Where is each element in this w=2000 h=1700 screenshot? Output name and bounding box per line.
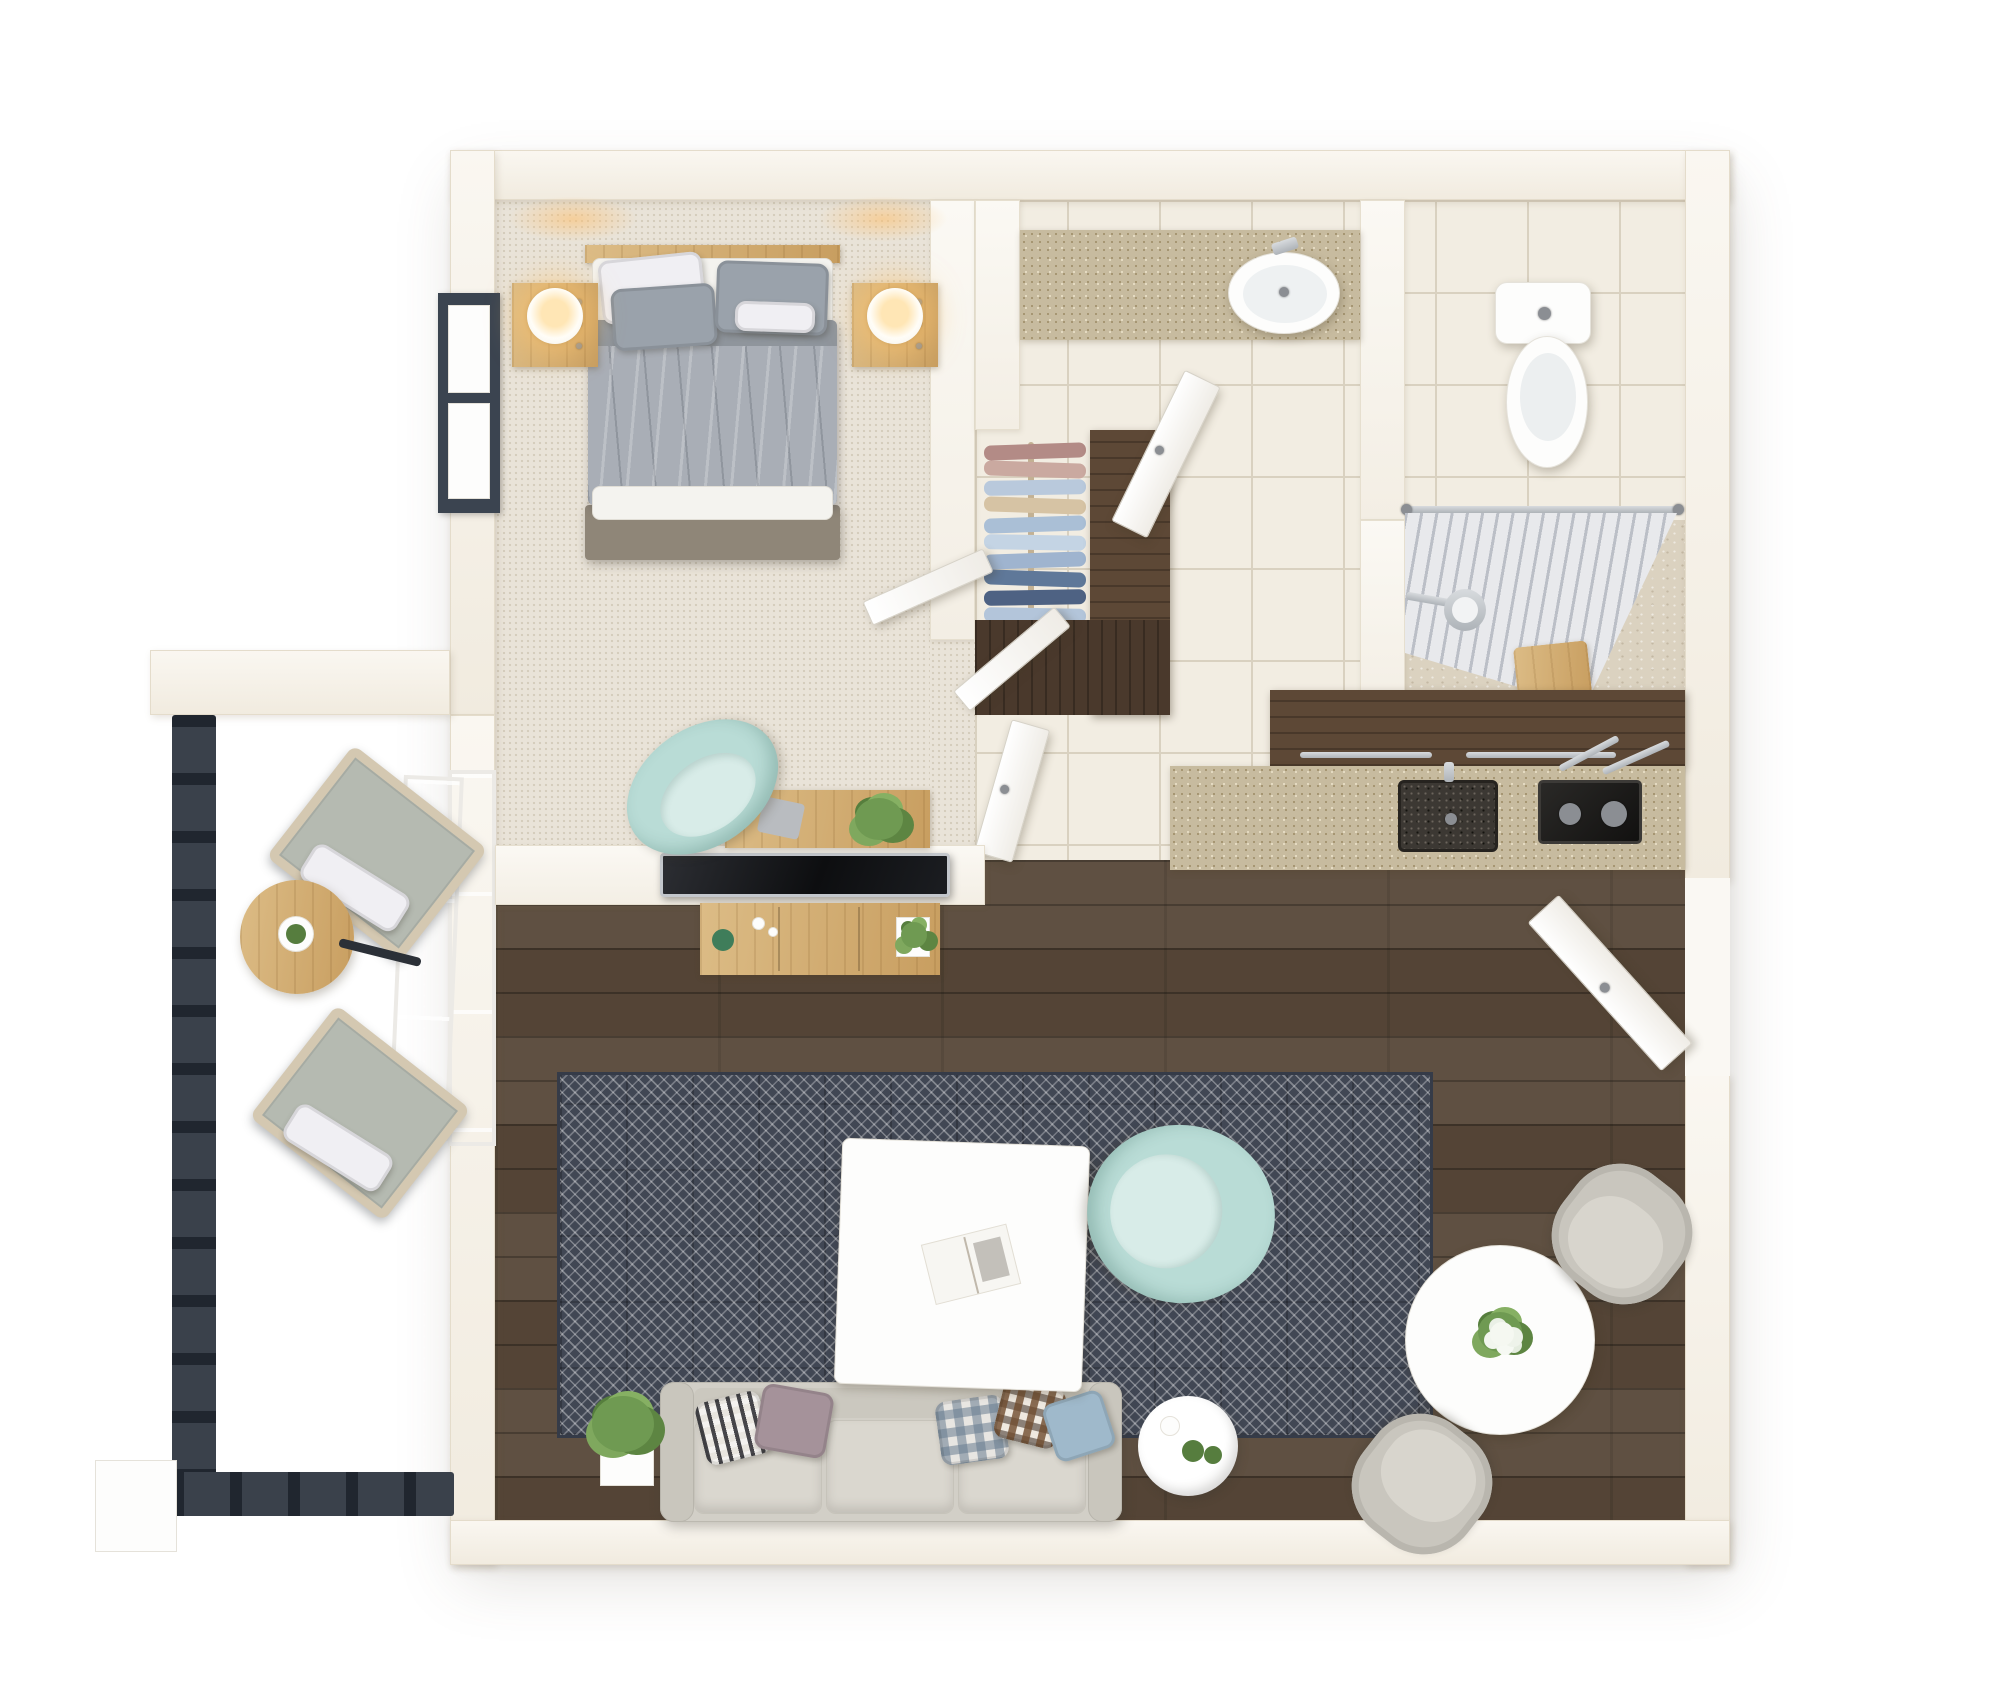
nightstand-right-knob-3 [916, 343, 922, 349]
closet-clothes-shirt-9 [984, 589, 1086, 606]
floorplan-canvas [0, 0, 2000, 1700]
balcony-curb [95, 1460, 177, 1552]
entry-threshold [1685, 878, 1730, 1076]
window-pane-upper [448, 305, 490, 393]
side-table-cup [1160, 1416, 1180, 1436]
sofa-seat-2 [826, 1420, 954, 1514]
lamp-left [527, 288, 583, 344]
coffee-table-magazine [921, 1224, 1021, 1305]
bedroom-window [438, 293, 500, 513]
desk-plant [855, 798, 903, 840]
kitchen-sink-drain [1445, 813, 1457, 825]
entry-door-handle [1598, 981, 1612, 995]
vanity-sink [1228, 252, 1340, 334]
shower-head [1444, 589, 1486, 631]
kitchen-upper-cabinet [1270, 690, 1685, 766]
burner-right [1601, 801, 1627, 827]
toilet-flush-button [1538, 307, 1551, 320]
bed-mattress-foot [592, 486, 833, 520]
bed-pillow-fold-white [735, 301, 816, 334]
balcony-table-plant [286, 924, 306, 944]
wall-right-upper [1685, 150, 1730, 880]
shower-head-face [1452, 597, 1478, 623]
coffee-table [834, 1138, 1090, 1393]
balcony-railing-bottom [172, 1472, 454, 1516]
wall-balcony-stub [150, 650, 450, 715]
magazine-photo [973, 1236, 1010, 1282]
sofa-arm-left [660, 1382, 694, 1522]
console-plant [901, 922, 927, 948]
kitchen-faucet [1444, 762, 1454, 782]
side-table-moss-1 [1182, 1440, 1204, 1462]
shower-curtain-rod [1405, 506, 1681, 513]
wall-top [450, 150, 1730, 200]
wall-bottom [450, 1520, 1730, 1565]
lamp-right [867, 288, 923, 344]
console-vase-2 [768, 927, 778, 937]
window-pane-lower [448, 403, 490, 499]
console-plant-pot [896, 917, 930, 957]
tv-console [700, 903, 940, 975]
sofa-pillow-mauve [753, 1382, 835, 1460]
toilet-bowl [1506, 336, 1588, 468]
closet-clothes-shirt-6 [984, 534, 1086, 551]
nightstand-left-knob-3 [576, 343, 582, 349]
console-seam-1 [778, 907, 780, 971]
toilet-seat [1520, 353, 1576, 441]
dining-vase-flowers [1490, 1322, 1514, 1346]
burner-left [1559, 803, 1581, 825]
sofa-side-plant [592, 1396, 654, 1452]
toilet-tank [1495, 282, 1591, 344]
wall-right-lower [1685, 1075, 1730, 1565]
bedroom-door-handle [999, 784, 1010, 795]
side-table-moss-2 [1204, 1446, 1222, 1464]
vanity-drain [1279, 287, 1289, 297]
balcony-railing-left [172, 715, 216, 1515]
closet-clothes-shirt-3 [984, 479, 1086, 496]
cabinet-handle-left [1300, 752, 1432, 758]
side-table-marble [1138, 1396, 1238, 1496]
kitchen-cooktop [1538, 780, 1642, 844]
wall-sconce-glow-right [818, 196, 948, 242]
kitchen-sink [1398, 780, 1498, 852]
console-cup-green [712, 929, 734, 951]
bed-pillow-gray-left [610, 282, 718, 351]
tv-screen [660, 853, 950, 897]
bathroom-door-handle [1153, 444, 1165, 456]
wall-shower-curb [1360, 520, 1405, 715]
wall-vanity-right-stub [1360, 200, 1405, 520]
wall-vanity-left-stub [975, 200, 1020, 430]
wall-sconce-glow-left [508, 196, 638, 242]
balcony-table [240, 880, 354, 994]
console-seam-2 [858, 907, 860, 971]
console-vase-1 [752, 917, 765, 930]
